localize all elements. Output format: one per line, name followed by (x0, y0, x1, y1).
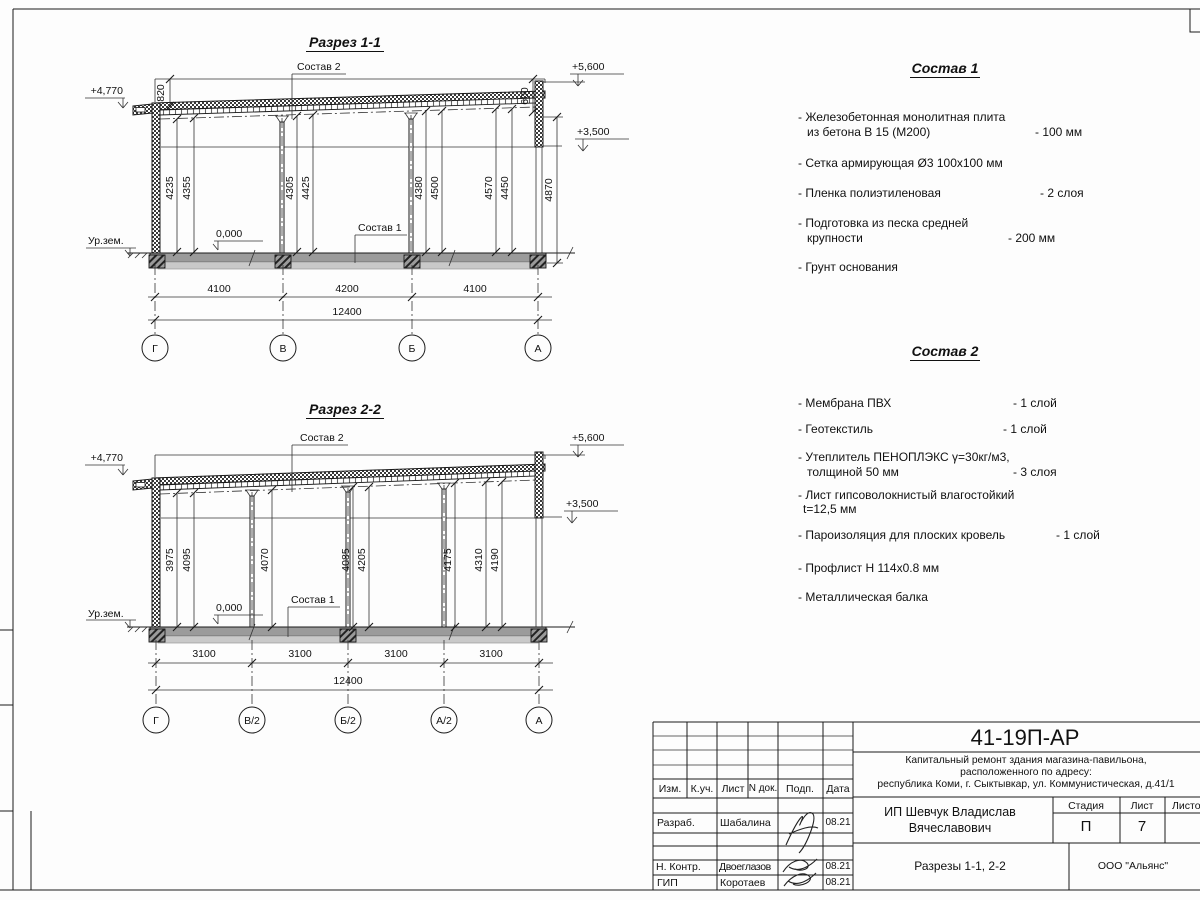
leader-label: Состав 2 (300, 432, 344, 444)
column-header: Дата (826, 783, 849, 795)
dim-label: 4500 (429, 176, 441, 200)
dim-label: 4570 (483, 176, 495, 200)
dim-label: 4095 (181, 548, 193, 572)
dim-label: 4100 (207, 283, 231, 295)
dim-label: 4425 (300, 176, 312, 200)
spec-item: - Пароизоляция для плоских кровель (798, 528, 1005, 542)
spec-item-value: - 100 мм (1035, 125, 1082, 139)
name-cell: Двоеглазов (719, 861, 771, 873)
spec-item: из бетона В 15 (М200) (807, 125, 930, 139)
dim-label: 4235 (164, 176, 176, 200)
leader-label: Состав 1 (358, 222, 402, 234)
axis-label: В (279, 343, 286, 355)
spec-item: - Геотекстиль (798, 422, 873, 436)
spec-item-value: - 1 слой (1056, 528, 1100, 542)
dim-label: 4205 (356, 548, 368, 572)
column-header: Подп. (786, 783, 814, 795)
sheets-label: Листо (1172, 800, 1200, 812)
elevation-label: +4,770 (91, 85, 124, 97)
spec-item-value: - 1 слой (1003, 422, 1047, 436)
sheet-number: 7 (1138, 818, 1146, 835)
spec-item: - Утеплитель ПЕНОПЛЭКС γ=30кг/м3, (798, 450, 1010, 464)
elevation-label: +5,600 (572, 61, 605, 73)
dim-label: 600 (519, 87, 531, 105)
spec-item: - Мембрана ПВХ (798, 396, 891, 410)
spec-2-heading: Состав 2 (790, 343, 1100, 361)
axis-label: А (534, 343, 541, 355)
project-description: республика Коми, г. Сыктывкар, ул. Комму… (877, 779, 1174, 790)
elevation-label: +4,770 (91, 452, 124, 464)
leader-label: Состав 1 (291, 594, 335, 606)
dim-label: 3100 (192, 648, 216, 660)
drawing-sheet: +4,770 +5,600 +3,500 Состав 2 Состав 1 У… (0, 0, 1200, 900)
dim-label: 3100 (288, 648, 312, 660)
role-cell: Разраб. (657, 817, 695, 829)
column-header: К.уч. (691, 783, 714, 795)
client-name: Вячеславович (909, 821, 992, 835)
client-name: ИП Шевчук Владислав (884, 805, 1016, 819)
name-cell: Шабалина (720, 817, 771, 829)
dim-label: 4190 (489, 548, 501, 572)
stage-label: Стадия (1068, 800, 1104, 812)
column-header: Лист (722, 783, 745, 795)
dim-label: 4310 (473, 548, 485, 572)
spec-item: крупности (807, 231, 863, 245)
ground-label: Ур.зем. (88, 608, 124, 620)
dim-label: 4305 (284, 176, 296, 200)
spec-1-heading: Состав 1 (790, 60, 1100, 78)
dim-label: 820 (155, 84, 167, 102)
project-description: расположенного по адресу: (960, 767, 1092, 778)
zero-mark-label: 0,000 (216, 602, 242, 614)
spec-sostav-1: Состав 1 - Железобетонная монолитная пли… (790, 55, 1120, 295)
signature (783, 859, 817, 872)
dim-label: 4380 (413, 176, 425, 200)
dim-label: 4085 (340, 548, 352, 572)
dim-label: 4450 (499, 176, 511, 200)
dim-label: 4070 (259, 548, 271, 572)
dim-label: 3100 (479, 648, 503, 660)
elevation-label: +5,600 (572, 432, 605, 444)
dim-label: 4870 (543, 178, 555, 202)
elevation-label: +3,500 (566, 498, 599, 510)
column-header: Изм. (659, 783, 682, 795)
dim-label: 12400 (332, 306, 361, 318)
spec-item: - Лист гипсоволокнистый влагостойкий (798, 488, 1014, 502)
column-header: N док. (749, 783, 778, 794)
spec-item-value: - 200 мм (1008, 231, 1055, 245)
dim-label: 4175 (442, 548, 454, 572)
dim-label: 4200 (335, 283, 359, 295)
section-2-2-title: Разрез 2-2 (306, 401, 384, 419)
spec-item: - Профлист Н 114х0.8 мм (798, 561, 939, 575)
document-title: Разрезы 1-1, 2-2 (914, 859, 1006, 873)
section-2-2-linework (85, 445, 624, 733)
stage-value: П (1081, 818, 1092, 835)
document-code: 41-19П-АР (971, 725, 1080, 751)
project-description: Капитальный ремонт здания магазина-павил… (905, 755, 1146, 766)
date-cell: 08.21 (825, 817, 850, 828)
axis-label: А (535, 715, 542, 727)
axis-label: Г (153, 715, 159, 727)
spec-item: - Пленка полиэтиленовая (798, 186, 941, 200)
spec-item: - Сетка армирующая Ø3 100х100 мм (798, 156, 1003, 170)
sheet-label: Лист (1131, 800, 1154, 812)
spec-item: - Металлическая балка (798, 590, 928, 604)
organization-name: ООО "Альянс" (1098, 860, 1168, 872)
spec-item: толщиной 50 мм (807, 465, 899, 479)
name-cell: Коротаев (720, 877, 765, 889)
elevation-label: +3,500 (577, 126, 610, 138)
role-cell: Н. Контр. (656, 861, 701, 873)
ground-label: Ур.зем. (88, 235, 124, 247)
zero-mark-label: 0,000 (216, 228, 242, 240)
spec-item: t=12,5 мм (803, 502, 857, 516)
spec-item-value: - 3 слоя (1013, 465, 1057, 479)
date-cell: 08.21 (825, 877, 850, 888)
leader-label: Состав 2 (297, 61, 341, 73)
spec-item-value: - 1 слой (1013, 396, 1057, 410)
dim-label: 3100 (384, 648, 408, 660)
axis-label: Б (409, 343, 416, 355)
spec-item-value: - 2 слоя (1040, 186, 1084, 200)
spec-item: - Подготовка из песка средней (798, 216, 968, 230)
spec-item: - Железобетонная монолитная плита (798, 110, 1005, 124)
axis-label: Б/2 (340, 715, 356, 727)
dim-label: 12400 (333, 675, 362, 687)
role-cell: ГИП (657, 877, 678, 889)
axis-label: Г (152, 343, 158, 355)
axis-label: А/2 (436, 715, 452, 727)
spec-item: - Грунт основания (798, 260, 898, 274)
date-cell: 08.21 (825, 861, 850, 872)
dim-label: 4355 (181, 176, 193, 200)
section-1-1-title: Разрез 1-1 (306, 34, 384, 52)
spec-sostav-2: Состав 2 - Мембрана ПВХ - 1 слой - Геоте… (790, 338, 1120, 618)
axis-label: В/2 (244, 715, 260, 727)
dim-label: 3975 (164, 548, 176, 572)
dim-label: 4100 (463, 283, 487, 295)
